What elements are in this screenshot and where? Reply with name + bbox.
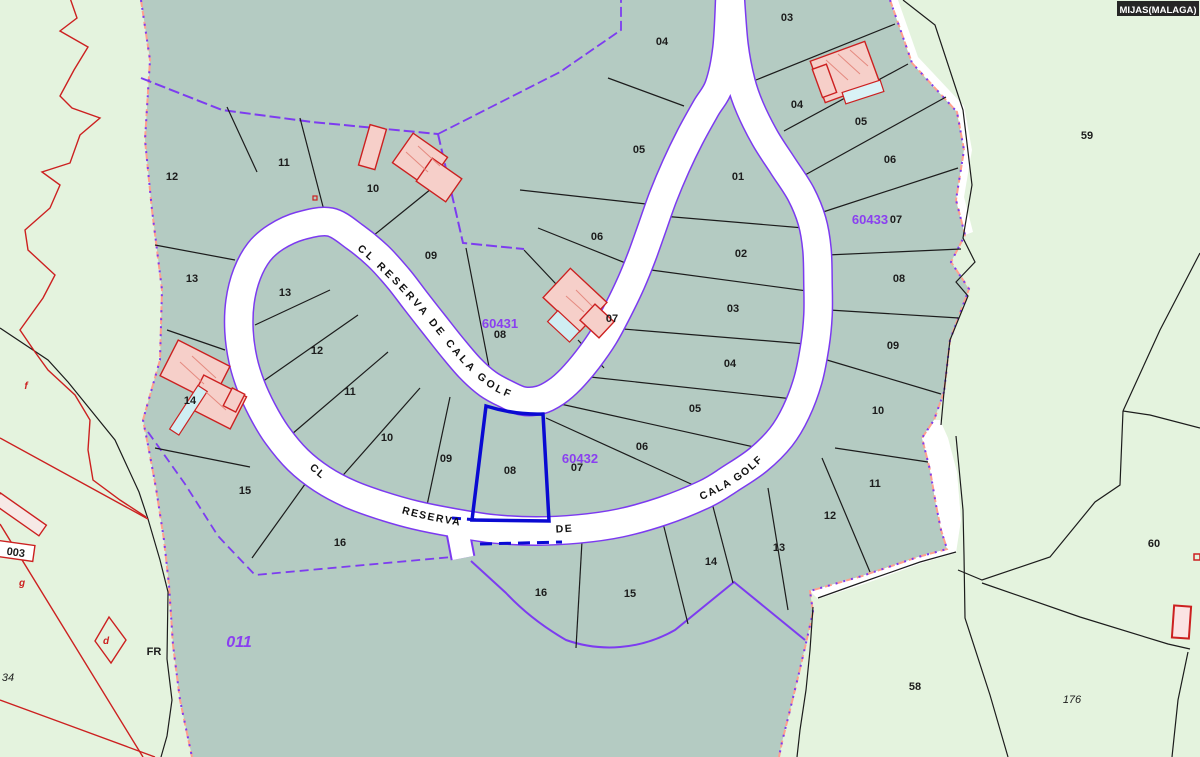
svg-text:06: 06 — [636, 441, 648, 453]
svg-text:60432: 60432 — [562, 451, 598, 466]
svg-text:05: 05 — [689, 403, 701, 415]
svg-text:60: 60 — [1148, 538, 1160, 550]
svg-text:04: 04 — [724, 358, 737, 370]
svg-text:10: 10 — [381, 432, 393, 444]
svg-text:09: 09 — [440, 453, 452, 465]
svg-text:d: d — [103, 636, 110, 647]
svg-text:12: 12 — [311, 345, 323, 357]
svg-text:03: 03 — [781, 12, 793, 24]
svg-text:60431: 60431 — [482, 316, 518, 331]
svg-text:13: 13 — [186, 273, 198, 285]
svg-text:10: 10 — [367, 183, 379, 195]
svg-text:09: 09 — [887, 340, 899, 352]
svg-text:04: 04 — [791, 99, 804, 111]
svg-text:11: 11 — [278, 157, 290, 169]
svg-text:15: 15 — [239, 485, 251, 497]
svg-text:FR: FR — [147, 646, 162, 658]
svg-text:003: 003 — [6, 546, 26, 560]
svg-text:06: 06 — [591, 231, 603, 243]
svg-text:05: 05 — [633, 144, 645, 156]
svg-text:14: 14 — [705, 556, 718, 568]
svg-text:176: 176 — [1063, 694, 1082, 706]
svg-text:10: 10 — [872, 405, 884, 417]
svg-text:04: 04 — [656, 36, 669, 48]
svg-text:07: 07 — [890, 214, 902, 226]
svg-text:g: g — [18, 578, 25, 589]
svg-text:11: 11 — [869, 478, 881, 490]
svg-text:13: 13 — [773, 542, 785, 554]
svg-text:16: 16 — [535, 587, 547, 599]
svg-text:06: 06 — [884, 154, 896, 166]
svg-text:01: 01 — [732, 171, 744, 183]
svg-text:07: 07 — [606, 313, 618, 325]
svg-text:09: 09 — [425, 250, 437, 262]
svg-text:16: 16 — [334, 537, 346, 549]
svg-text:58: 58 — [909, 681, 921, 693]
svg-text:13: 13 — [279, 287, 291, 299]
svg-text:02: 02 — [735, 248, 747, 260]
svg-text:12: 12 — [824, 510, 836, 522]
svg-text:DE: DE — [555, 523, 573, 536]
svg-text:15: 15 — [624, 588, 636, 600]
svg-text:08: 08 — [504, 465, 516, 477]
svg-text:11: 11 — [344, 386, 356, 398]
svg-text:12: 12 — [166, 171, 178, 183]
svg-text:MIJAS(MALAGA): MIJAS(MALAGA) — [1119, 5, 1196, 16]
svg-text:60433: 60433 — [852, 212, 888, 227]
svg-text:05: 05 — [855, 116, 867, 128]
svg-text:14: 14 — [184, 395, 197, 407]
svg-text:59: 59 — [1081, 130, 1093, 142]
svg-text:34: 34 — [2, 672, 14, 684]
svg-text:011: 011 — [226, 634, 252, 651]
svg-text:03: 03 — [727, 303, 739, 315]
svg-text:08: 08 — [893, 273, 905, 285]
